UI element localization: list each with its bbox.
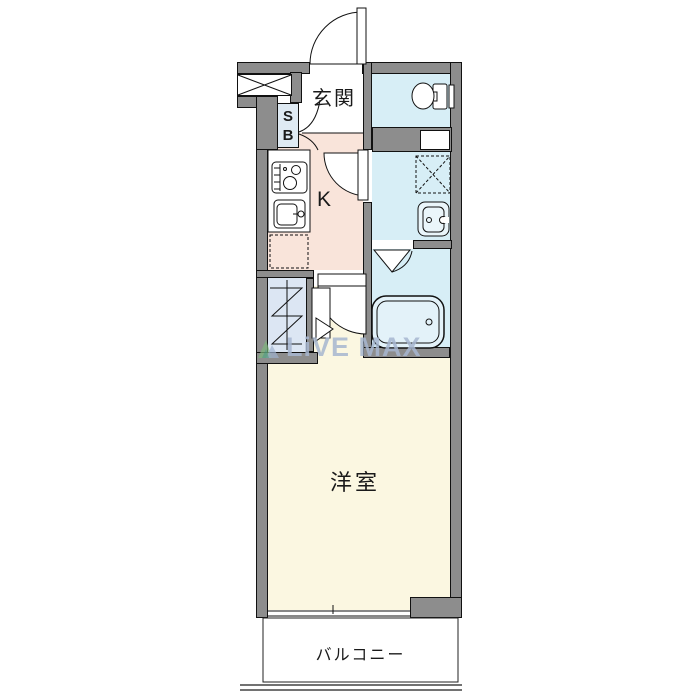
kitchen-label: K <box>312 188 336 212</box>
hatched-void-x <box>238 75 291 95</box>
kitchen-sink-icon <box>274 200 305 228</box>
watermark-text: LiVE MAX <box>286 332 422 363</box>
washing-machine-space-icon <box>416 156 450 193</box>
washbasin-icon <box>418 202 449 236</box>
balcony-label: バルコニー <box>298 641 423 665</box>
sliding-window-icon <box>268 605 410 616</box>
fridge-space-icon <box>270 235 308 268</box>
western-room-label: 洋室 <box>318 465 392 497</box>
entrance-label: 玄関 <box>306 82 362 111</box>
stove-icon <box>272 162 307 193</box>
toilet-icon <box>412 83 454 109</box>
floor-plan: S B <box>0 0 700 700</box>
watermark-logo-icon <box>256 334 282 362</box>
balcony-railing <box>240 685 462 690</box>
bath-folding-door-icon <box>374 250 412 272</box>
entrance-door-swing-icon <box>310 8 366 64</box>
watermark: LiVE MAX <box>256 332 422 363</box>
